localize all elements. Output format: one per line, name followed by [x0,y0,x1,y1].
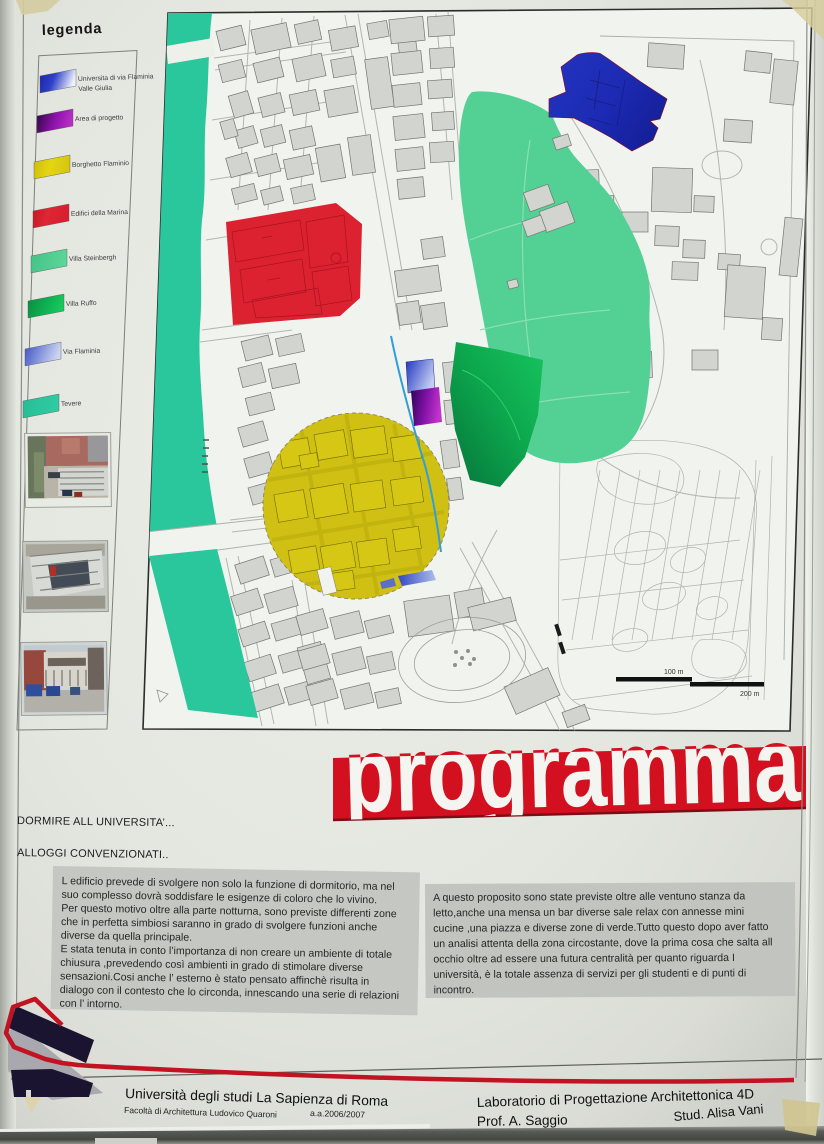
svg-text:a.a.2006/2007: a.a.2006/2007 [310,1108,365,1120]
svg-text:Valle Giulia: Valle Giulia [78,85,112,93]
svg-text:Via Flaminia: Via Flaminia [63,348,101,356]
svg-text:incontro.: incontro. [434,984,475,996]
svg-text:un analisi attenta della zona: un analisi attenta della zona circostant… [433,936,772,950]
svg-text:università, è la totale assenz: università, è la totale assenza di servi… [433,967,746,981]
svg-text:Tevere: Tevere [61,400,82,408]
svg-text:A questo proposito sono state: A questo proposito sono state previste o… [433,890,745,904]
svg-text:cucine ,una piazza e diverse z: cucine ,una piazza e diverse zone di ver… [433,921,768,935]
svg-text:100 m: 100 m [664,669,684,676]
svg-text:diverse da quella principale.: diverse da quella principale. [61,930,193,944]
svg-text:Prof. A. Saggio: Prof. A. Saggio [477,1112,568,1129]
svg-text:DORMIRE ALL UNIVERSITA’...: DORMIRE ALL UNIVERSITA’... [17,815,175,829]
svg-text:occhio oltre ad essere una fut: occhio oltre ad essere una futura centra… [433,952,735,966]
svg-text:con l’ intorno.: con l’ intorno. [59,998,122,1011]
svg-text:legenda: legenda [42,21,103,39]
svg-text:Villa Ruffo: Villa Ruffo [66,300,97,308]
svg-text:ALLOGGI CONVENZIONATI..: ALLOGGI CONVENZIONATI.. [17,847,169,861]
svg-text:letto,anche una mensa un bar d: letto,anche una mensa un bar diverse sal… [433,906,744,920]
svg-text:200 m: 200 m [740,691,760,698]
